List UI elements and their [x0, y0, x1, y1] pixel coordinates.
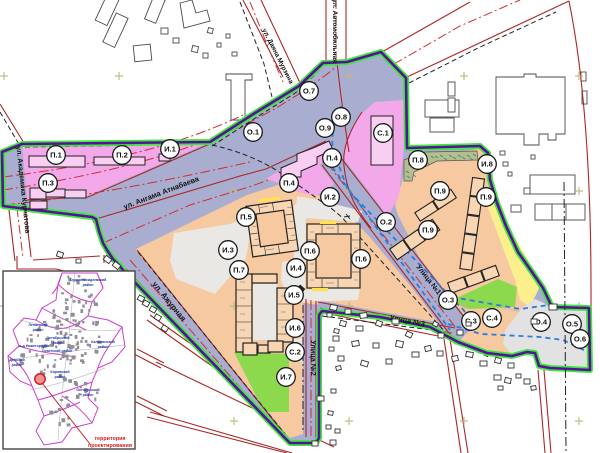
svg-text:район: район	[33, 328, 44, 332]
svg-text:район: район	[53, 341, 64, 345]
svg-text:П.4: П.4	[326, 154, 339, 163]
svg-text:О.6: О.6	[574, 335, 586, 344]
svg-text:П.9: П.9	[434, 187, 446, 196]
svg-text:П.6: П.6	[304, 247, 316, 256]
svg-text:район: район	[83, 283, 94, 287]
svg-text:Калининский: Калининский	[91, 340, 115, 344]
svg-text:Октябрьский: Октябрьский	[46, 336, 69, 340]
svg-text:И.4: И.4	[290, 264, 303, 273]
svg-text:П.3: П.3	[42, 179, 54, 188]
svg-text:район: район	[98, 345, 109, 349]
svg-text:П.9: П.9	[422, 226, 434, 235]
svg-text:район: район	[55, 375, 66, 379]
svg-text:И.8: И.8	[481, 160, 493, 169]
svg-text:П.6: П.6	[355, 255, 367, 264]
svg-text:П.9: П.9	[480, 193, 492, 202]
svg-text:Улица №2: Улица №2	[309, 340, 318, 376]
svg-text:П.7: П.7	[233, 266, 245, 275]
svg-text:И.7: И.7	[280, 373, 292, 382]
svg-text:П.8: П.8	[412, 156, 424, 165]
svg-text:О.2: О.2	[380, 218, 392, 227]
svg-text:П.2: П.2	[116, 151, 128, 160]
svg-text:территория: территория	[94, 436, 125, 442]
svg-text:район: район	[83, 393, 94, 397]
svg-text:О.5: О.5	[566, 320, 579, 329]
svg-text:И.2: И.2	[324, 193, 336, 202]
svg-text:П.4: П.4	[283, 179, 296, 188]
svg-text:О.1: О.1	[247, 128, 260, 137]
svg-text:Кировский: Кировский	[50, 370, 69, 374]
svg-text:П.5: П.5	[240, 213, 253, 222]
svg-text:Ленинский: Ленинский	[28, 323, 47, 327]
svg-text:И.1: И.1	[164, 145, 177, 154]
svg-text:С.4: С.4	[486, 314, 499, 323]
svg-text:Демский: Демский	[9, 358, 24, 362]
svg-text:Октябрьский: Октябрьский	[76, 388, 99, 392]
svg-text:О.8: О.8	[335, 113, 347, 122]
svg-text:О.9: О.9	[319, 124, 331, 133]
svg-text:С.1: С.1	[377, 129, 390, 138]
svg-text:Советский район: Советский район	[42, 349, 73, 353]
svg-text:И.3: И.3	[222, 246, 234, 255]
svg-text:ул. Автомобильная: ул. Автомобильная	[331, 0, 339, 63]
svg-text:район: район	[12, 363, 23, 367]
svg-text:О.3: О.3	[442, 296, 454, 305]
svg-text:П.1: П.1	[50, 151, 63, 160]
svg-text:О.7: О.7	[303, 87, 315, 96]
svg-text:проектирования: проектирования	[88, 443, 132, 449]
svg-text:И.5: И.5	[288, 291, 301, 300]
svg-text:ж-д Нижегородка: ж-д Нижегородка	[18, 344, 50, 348]
svg-text:С.2: С.2	[289, 348, 301, 357]
svg-text:Орджоникидзевский: Орджоникидзевский	[70, 278, 107, 282]
svg-text:И.6: И.6	[289, 324, 301, 333]
